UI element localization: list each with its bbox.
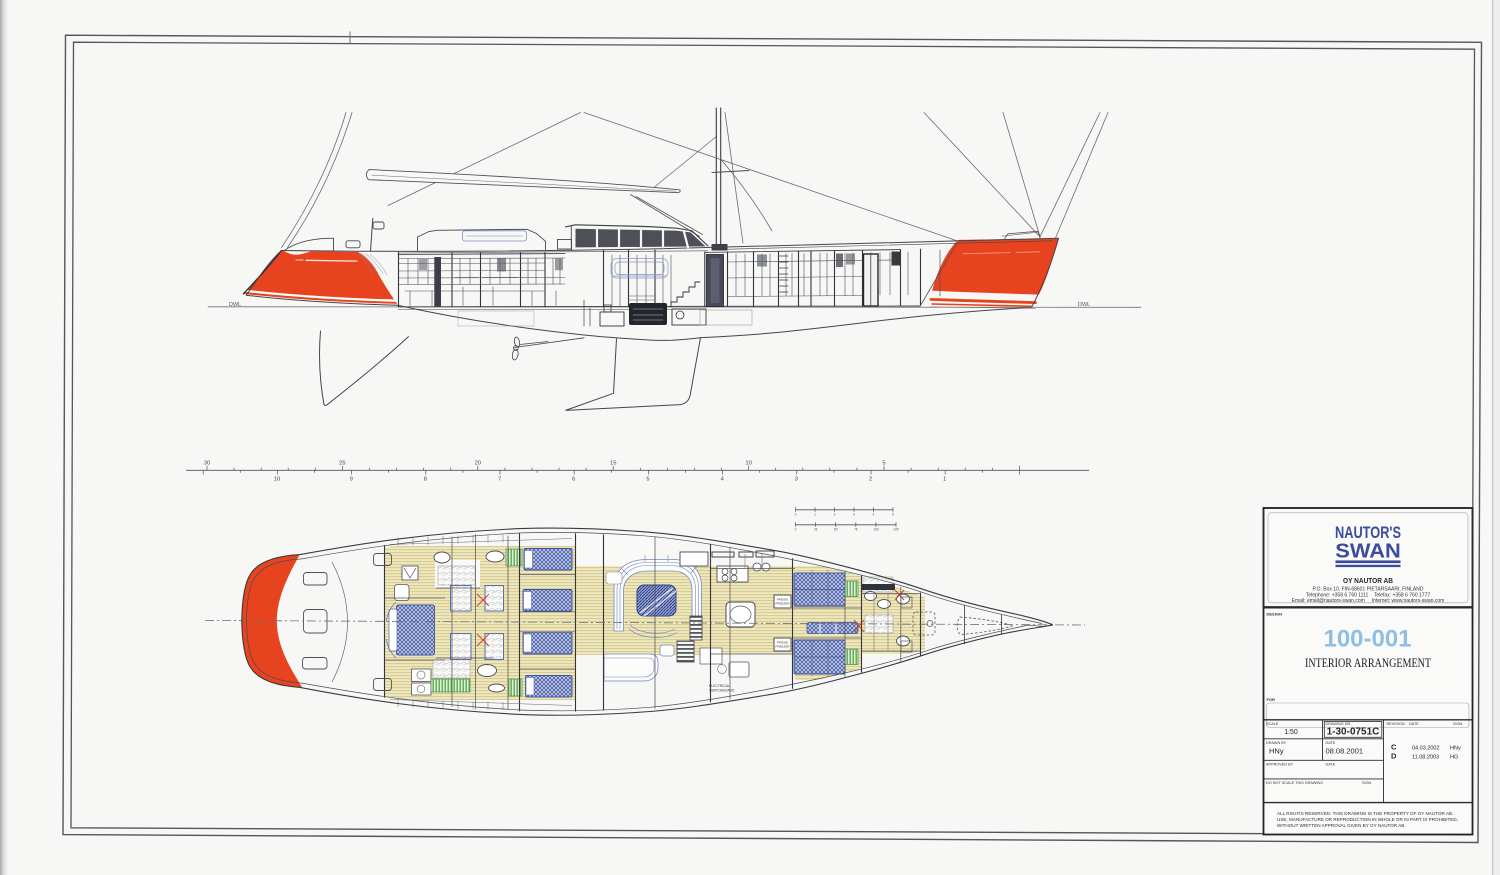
svg-text:SCALE: SCALE: [1266, 722, 1279, 726]
svg-text:0: 0: [795, 513, 797, 517]
svg-text:75: 75: [854, 528, 858, 532]
svg-text:04.03.2002: 04.03.2002: [1412, 746, 1440, 752]
svg-text:20: 20: [475, 461, 481, 467]
svg-text:WITHOUT WRITTEN APPROVAL GIVEN: WITHOUT WRITTEN APPROVAL GIVEN BY OY NAU…: [1277, 823, 1406, 828]
svg-text:5: 5: [646, 476, 649, 482]
svg-text:FREEZER: FREEZER: [775, 602, 790, 606]
svg-text:9: 9: [350, 476, 353, 482]
svg-text:SWITCHBOARD: SWITCHBOARD: [709, 689, 735, 693]
svg-text:3: 3: [853, 513, 855, 517]
svg-text:DWL: DWL: [1078, 302, 1090, 308]
svg-text:ALL RIGHTS RESERVED. THIS DRAW: ALL RIGHTS RESERVED. THIS DRAWING IS THE…: [1277, 811, 1453, 816]
svg-text:DATE: DATE: [1409, 722, 1419, 726]
svg-text:1:50: 1:50: [1284, 729, 1298, 736]
svg-text:SWAN: SWAN: [1335, 539, 1401, 562]
svg-text:50: 50: [834, 528, 838, 532]
svg-text:4: 4: [873, 513, 875, 517]
svg-text:DRAWN BY: DRAWN BY: [1266, 741, 1287, 745]
svg-text:SIGN: SIGN: [1362, 781, 1372, 785]
svg-text:25: 25: [339, 461, 345, 467]
svg-text:HNy: HNy: [1269, 747, 1284, 756]
svg-text:100-001: 100-001: [1324, 626, 1412, 653]
svg-text:Email: email@nautors-swan.com: Email: email@nautors-swan.com Internet: …: [1292, 598, 1445, 604]
svg-text:5: 5: [892, 513, 894, 517]
svg-text:ELECTRICAL: ELECTRICAL: [709, 684, 730, 688]
svg-text:8: 8: [424, 476, 427, 482]
svg-text:100: 100: [873, 528, 879, 532]
svg-text:APPROVED BY: APPROVED BY: [1266, 762, 1294, 766]
svg-text:DESIGN: DESIGN: [1267, 612, 1282, 617]
svg-text:15: 15: [610, 461, 616, 467]
svg-text:10: 10: [274, 476, 280, 482]
svg-text:25: 25: [814, 528, 818, 532]
svg-text:DRAWING NR.: DRAWING NR.: [1326, 722, 1352, 726]
svg-text:6: 6: [572, 476, 575, 482]
svg-text:FOR: FOR: [1267, 697, 1276, 702]
svg-text:D: D: [1391, 751, 1397, 760]
svg-text:125: 125: [893, 528, 899, 532]
svg-text:1-30-0751C: 1-30-0751C: [1327, 726, 1380, 737]
svg-text:HNy: HNy: [1450, 746, 1461, 752]
svg-text:08.08.2001: 08.08.2001: [1326, 747, 1364, 756]
svg-text:1: 1: [814, 513, 816, 517]
svg-text:10: 10: [745, 461, 751, 467]
svg-text:DATE: DATE: [1326, 762, 1336, 766]
svg-text:1: 1: [943, 476, 946, 482]
svg-text:30: 30: [204, 461, 210, 467]
svg-text:DWL: DWL: [229, 302, 241, 308]
svg-text:2: 2: [834, 513, 836, 517]
svg-text:3: 3: [795, 476, 798, 482]
svg-text:OY NAUTOR AB: OY NAUTOR AB: [1343, 576, 1394, 585]
svg-text:7: 7: [498, 476, 501, 482]
svg-text:DO NOT SCALE THIS DRAWING: DO NOT SCALE THIS DRAWING: [1266, 781, 1323, 785]
svg-text:C: C: [1391, 743, 1397, 752]
svg-text:REVISION: REVISION: [1387, 722, 1405, 726]
svg-text:DATE: DATE: [1326, 741, 1336, 745]
svg-text:HG: HG: [1450, 754, 1458, 760]
svg-text:INTERIOR ARRANGEMENT: INTERIOR ARRANGEMENT: [1305, 656, 1431, 670]
svg-text:11.08.2003: 11.08.2003: [1412, 754, 1439, 760]
svg-text:2: 2: [869, 476, 872, 482]
svg-text:FREEZER: FREEZER: [775, 645, 790, 649]
svg-text:5: 5: [882, 461, 885, 467]
svg-text:USE, MANUFACTURE OR REPRODUCTI: USE, MANUFACTURE OR REPRODUCTION IN WHOL…: [1277, 817, 1458, 822]
svg-text:SIGN: SIGN: [1453, 722, 1463, 726]
svg-text:0: 0: [795, 528, 797, 532]
